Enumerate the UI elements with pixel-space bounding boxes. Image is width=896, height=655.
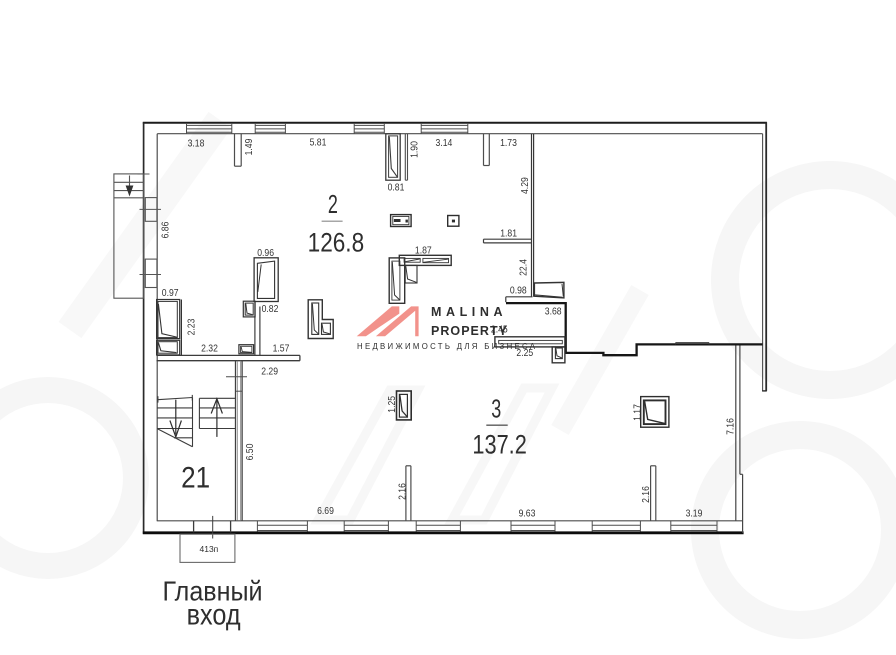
svg-text:0.97: 0.97 xyxy=(162,287,179,299)
svg-text:2.16: 2.16 xyxy=(396,483,408,500)
svg-text:21: 21 xyxy=(181,461,210,494)
svg-text:вход: вход xyxy=(187,599,241,632)
svg-text:1.25: 1.25 xyxy=(386,396,398,413)
svg-text:PROPERTY: PROPERTY xyxy=(431,324,509,338)
svg-text:5.81: 5.81 xyxy=(310,136,327,148)
svg-text:1.57: 1.57 xyxy=(273,343,290,355)
svg-text:2.16: 2.16 xyxy=(640,486,652,503)
svg-text:3.14: 3.14 xyxy=(436,137,453,149)
svg-text:22.4: 22.4 xyxy=(517,259,529,276)
svg-text:2: 2 xyxy=(328,189,338,219)
svg-text:НЕДВИЖИМОСТЬ ДЛЯ БИЗНЕСА: НЕДВИЖИМОСТЬ ДЛЯ БИЗНЕСА xyxy=(357,342,537,351)
svg-text:1.87: 1.87 xyxy=(415,244,432,256)
svg-text:3.68: 3.68 xyxy=(545,305,562,317)
svg-text:2.32: 2.32 xyxy=(201,343,218,355)
svg-text:6.69: 6.69 xyxy=(317,505,334,517)
svg-text:7.16: 7.16 xyxy=(725,418,737,435)
svg-text:1.17: 1.17 xyxy=(632,404,644,421)
svg-text:1.90: 1.90 xyxy=(409,141,421,158)
svg-text:MALINA: MALINA xyxy=(431,305,508,319)
svg-text:3: 3 xyxy=(491,394,501,424)
svg-text:0.96: 0.96 xyxy=(257,247,274,259)
svg-text:3.19: 3.19 xyxy=(686,508,703,520)
svg-text:2.23: 2.23 xyxy=(186,318,198,335)
svg-text:1.81: 1.81 xyxy=(500,228,517,240)
svg-text:137.2: 137.2 xyxy=(472,430,527,460)
svg-text:0.81: 0.81 xyxy=(388,182,405,194)
svg-text:1.73: 1.73 xyxy=(500,137,517,149)
svg-text:6.86: 6.86 xyxy=(159,221,171,238)
svg-text:2.29: 2.29 xyxy=(261,365,278,377)
svg-text:9.63: 9.63 xyxy=(519,508,536,520)
svg-text:4.29: 4.29 xyxy=(519,177,531,194)
svg-text:126.8: 126.8 xyxy=(308,228,365,258)
svg-text:0.98: 0.98 xyxy=(510,285,527,297)
svg-text:1.49: 1.49 xyxy=(243,138,255,155)
svg-text:3.18: 3.18 xyxy=(188,138,205,150)
svg-text:6.50: 6.50 xyxy=(244,443,256,460)
svg-text:0.82: 0.82 xyxy=(262,303,279,315)
svg-text:413п: 413п xyxy=(200,544,219,554)
